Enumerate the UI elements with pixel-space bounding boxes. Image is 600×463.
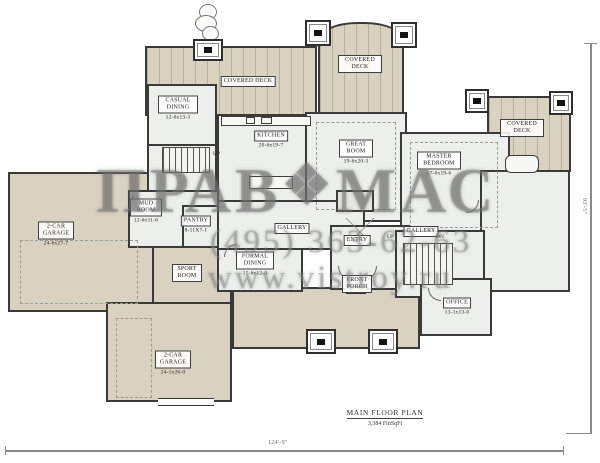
room-label-office: OFFICE 13-1x13-0	[443, 291, 471, 316]
porch-column-icon	[368, 329, 398, 354]
room-label-garage-south: 2-CAR GARAGE 24-1x26-0	[155, 351, 191, 376]
dimension-tick	[584, 43, 597, 44]
stairs-up-east-label: UP	[387, 234, 394, 240]
porch-column-icon	[391, 22, 417, 48]
room-label-garage-west: 2-CAR GARAGE 24-6x27-7	[38, 222, 74, 247]
master-tub	[505, 155, 539, 173]
width-dimension-label: 124'-9"	[268, 440, 288, 446]
dimension-connector	[566, 433, 591, 434]
stairs-east	[403, 243, 453, 285]
kitchen-island	[249, 176, 293, 189]
room-label-covered-deck-nw: COVERED DECK	[221, 69, 276, 87]
room-label-pantry: PANTRY 8-11X7-1	[181, 209, 211, 234]
room-label-mud-room: MUD ROOM 12-6x11-6	[130, 199, 162, 224]
room-label-gallery-west: GALLERY	[274, 216, 309, 234]
room-label-kitchen: KITCHEN 20-6x19-7	[254, 124, 288, 149]
room-label-formal-dining: FORMAL DINING 15-6x12-0	[236, 252, 274, 277]
height-dimension-label: 93'-5"	[581, 198, 587, 214]
room-label-gallery-east: GALLERY	[403, 219, 438, 237]
porch-column-icon	[465, 89, 489, 113]
stairs-west	[162, 147, 210, 173]
garage-south-stall	[116, 318, 152, 398]
room-label-entry: ENTRY	[344, 228, 371, 246]
garage-west-stalls	[20, 240, 138, 304]
porch-column-icon	[306, 329, 336, 354]
dimension-tick	[563, 446, 564, 455]
room-label-front-porch: FRONT PORCH	[342, 275, 372, 293]
chimney-box-icon	[193, 39, 223, 61]
stairs-down-east-label: DN	[436, 234, 444, 240]
room-label-covered-deck-n: COVERED DECK	[338, 55, 382, 73]
dimension-line-right	[590, 44, 592, 434]
plan-area: 3,384 FinSqFt	[320, 421, 450, 427]
fireplace	[336, 190, 374, 212]
plan-title: MAIN FLOOR PLAN	[347, 408, 424, 419]
dimension-tick	[5, 446, 6, 455]
floor-plan: COVERED DECK COVERED DECK COVERED DECK C…	[0, 0, 600, 463]
porch-column-icon	[305, 20, 331, 46]
stairs-up-west-label: UP	[213, 151, 220, 157]
garage-door	[158, 398, 214, 406]
room-label-master-bedroom: MASTER BEDROOM 17-0x19-6	[417, 152, 461, 177]
porch-column-icon	[549, 91, 573, 115]
room-label-covered-deck-e: COVERED DECK	[500, 119, 544, 137]
room-label-great-room: GREAT ROOM 19-6x20-3	[339, 140, 373, 165]
dimension-line-bottom	[6, 450, 564, 452]
room-label-sport-room: SPORT ROOM	[172, 264, 202, 282]
title-block: MAIN FLOOR PLAN 3,384 FinSqFt	[320, 402, 450, 427]
room-label-casual-dining: CASUAL DINING 12-6x13-3	[158, 96, 198, 121]
